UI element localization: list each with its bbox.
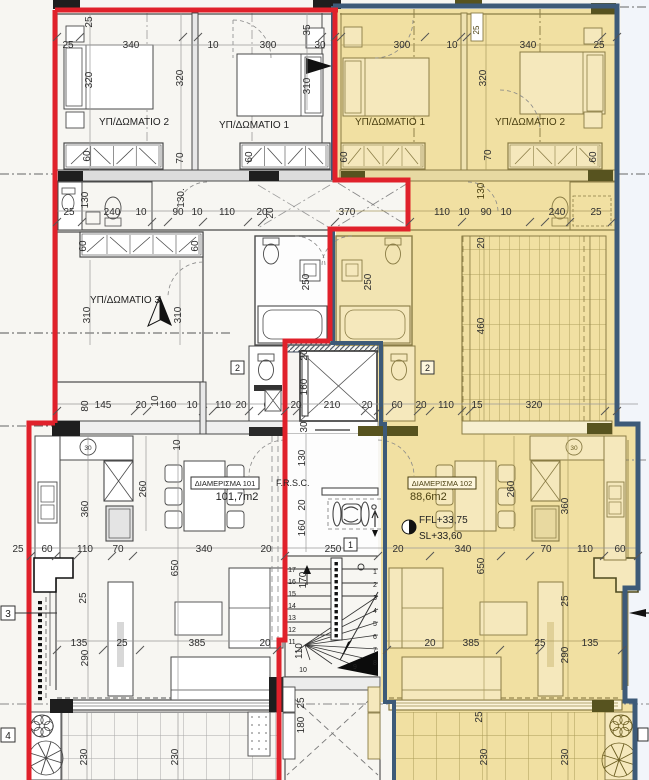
svg-text:10: 10 — [135, 207, 147, 218]
svg-text:25: 25 — [560, 595, 571, 607]
svg-text:250: 250 — [301, 273, 312, 290]
svg-text:1: 1 — [348, 540, 353, 550]
svg-text:310: 310 — [82, 306, 93, 323]
svg-text:13: 13 — [288, 615, 296, 622]
svg-text:25: 25 — [62, 40, 74, 51]
svg-text:250: 250 — [325, 544, 342, 555]
svg-text:180: 180 — [296, 716, 307, 733]
svg-text:70: 70 — [175, 152, 186, 164]
svg-text:20: 20 — [260, 544, 272, 555]
svg-text:310: 310 — [173, 306, 184, 323]
svg-text:310: 310 — [302, 77, 313, 94]
svg-text:20: 20 — [259, 638, 271, 649]
svg-text:2: 2 — [235, 363, 240, 373]
svg-text:240: 240 — [104, 207, 121, 218]
svg-text:110: 110 — [77, 544, 93, 555]
svg-text:20: 20 — [476, 237, 487, 249]
svg-text:340: 340 — [123, 40, 140, 51]
svg-text:25: 25 — [590, 207, 602, 218]
svg-text:25: 25 — [472, 25, 481, 34]
svg-text:SL+33,60: SL+33,60 — [419, 531, 463, 542]
svg-text:60: 60 — [614, 544, 626, 555]
svg-text:25: 25 — [534, 638, 546, 649]
svg-text:2: 2 — [425, 363, 430, 373]
svg-text:10: 10 — [458, 207, 470, 218]
svg-text:4: 4 — [373, 608, 377, 615]
svg-text:30: 30 — [314, 40, 326, 51]
svg-text:30: 30 — [299, 421, 310, 433]
svg-text:250: 250 — [363, 273, 374, 290]
svg-text:160: 160 — [297, 519, 308, 536]
svg-text:110: 110 — [219, 207, 235, 218]
svg-text:230: 230 — [79, 748, 90, 765]
svg-text:320: 320 — [478, 69, 489, 86]
svg-text:650: 650 — [170, 559, 181, 576]
svg-text:130.: 130. — [176, 188, 187, 207]
svg-text:17: 17 — [288, 567, 296, 574]
svg-text:240: 240 — [549, 207, 566, 218]
svg-text:20: 20 — [297, 499, 308, 511]
svg-text:20: 20 — [135, 400, 147, 411]
svg-text:30: 30 — [570, 445, 578, 452]
svg-text:360: 360 — [560, 497, 571, 514]
svg-text:230: 230 — [479, 748, 490, 765]
svg-text:3: 3 — [5, 609, 11, 620]
svg-text:20: 20 — [415, 400, 427, 411]
svg-text:15: 15 — [288, 591, 296, 598]
svg-text:340: 340 — [455, 544, 472, 555]
svg-text:25: 25 — [84, 16, 95, 28]
svg-text:2: 2 — [373, 582, 377, 589]
svg-text:10: 10 — [500, 207, 512, 218]
svg-text:ΥΠ/ΔΩΜΑΤΙΟ 1: ΥΠ/ΔΩΜΑΤΙΟ 1 — [219, 120, 290, 131]
svg-text:60: 60 — [391, 400, 403, 411]
svg-text:60: 60 — [41, 544, 53, 555]
svg-text:130: 130 — [297, 449, 308, 466]
svg-text:20: 20 — [265, 207, 276, 219]
svg-text:340: 340 — [196, 544, 213, 555]
svg-text:80: 80 — [80, 400, 91, 412]
svg-text:ΔΙΑΜΕΡΙΣΜΑ 102: ΔΙΑΜΕΡΙΣΜΑ 102 — [412, 479, 473, 488]
svg-text:135: 135 — [582, 638, 599, 649]
svg-text:650: 650 — [476, 557, 487, 574]
svg-text:4: 4 — [5, 731, 11, 742]
svg-text:ΥΠ/ΔΩΜΑΤΙΟ 2: ΥΠ/ΔΩΜΑΤΙΟ 2 — [99, 117, 170, 128]
svg-text:110: 110 — [434, 207, 450, 218]
svg-text:385: 385 — [463, 638, 480, 649]
svg-text:F.R.S.C.: F.R.S.C. — [276, 478, 310, 488]
svg-text:25: 25 — [474, 711, 485, 723]
svg-text:14: 14 — [288, 603, 296, 610]
svg-text:5: 5 — [373, 621, 377, 628]
svg-text:110: 110 — [577, 544, 593, 555]
svg-text:20: 20 — [235, 400, 247, 411]
svg-text:70: 70 — [540, 544, 552, 555]
svg-text:10: 10 — [299, 667, 307, 674]
svg-text:25: 25 — [63, 207, 75, 218]
svg-text:25: 25 — [296, 697, 307, 709]
svg-text:25: 25 — [78, 592, 89, 604]
svg-text:6: 6 — [373, 634, 377, 641]
svg-text:60: 60 — [244, 151, 255, 163]
svg-text:290: 290 — [560, 646, 571, 663]
svg-text:ΥΠ/ΔΩΜΑΤΙΟ 3: ΥΠ/ΔΩΜΑΤΙΟ 3 — [90, 295, 161, 306]
svg-text:16: 16 — [288, 579, 296, 586]
svg-text:8: 8 — [373, 660, 377, 667]
svg-text:15: 15 — [471, 400, 483, 411]
svg-text:20: 20 — [361, 400, 373, 411]
svg-text:230: 230 — [170, 748, 181, 765]
svg-text:320: 320 — [84, 71, 95, 88]
svg-text:3: 3 — [373, 595, 377, 602]
svg-text:135: 135 — [71, 638, 88, 649]
svg-text:170: 170 — [298, 571, 309, 588]
svg-text:460: 460 — [476, 317, 487, 334]
svg-text:60: 60 — [588, 151, 599, 163]
svg-text:7: 7 — [373, 647, 377, 654]
svg-text:20: 20 — [424, 638, 436, 649]
svg-text:60: 60 — [82, 150, 93, 162]
svg-text:290: 290 — [80, 649, 91, 666]
svg-text:110: 110 — [215, 400, 231, 411]
svg-text:25: 25 — [12, 544, 24, 555]
svg-text:90: 90 — [480, 207, 492, 218]
svg-text:340: 340 — [520, 40, 537, 51]
svg-text:145: 145 — [95, 400, 112, 411]
svg-text:60: 60 — [78, 240, 89, 252]
svg-text:10: 10 — [191, 207, 203, 218]
svg-text:ΥΠ/ΔΩΜΑΤΙΟ 1: ΥΠ/ΔΩΜΑΤΙΟ 1 — [355, 117, 426, 128]
svg-text:20: 20 — [290, 400, 302, 411]
svg-text:360: 360 — [80, 500, 91, 517]
svg-text:260: 260 — [138, 480, 149, 497]
svg-text:88,6m2: 88,6m2 — [410, 491, 447, 503]
svg-text:385: 385 — [189, 638, 206, 649]
svg-text:25: 25 — [116, 638, 128, 649]
svg-text:1: 1 — [373, 569, 377, 576]
svg-text:20: 20 — [392, 544, 404, 555]
svg-text:10: 10 — [186, 400, 198, 411]
svg-text:35: 35 — [302, 24, 313, 36]
svg-text:25: 25 — [593, 40, 605, 51]
svg-text:60: 60 — [339, 151, 350, 163]
svg-text:FFL+33,75: FFL+33,75 — [419, 515, 468, 526]
svg-text:10: 10 — [172, 439, 183, 451]
svg-text:130: 130 — [80, 191, 91, 208]
svg-text:320: 320 — [175, 69, 186, 86]
svg-text:260: 260 — [506, 480, 517, 497]
svg-text:10: 10 — [207, 40, 219, 51]
svg-text:9: 9 — [353, 664, 357, 671]
svg-text:10: 10 — [446, 40, 458, 51]
svg-text:101,7m2: 101,7m2 — [216, 491, 259, 503]
svg-text:130: 130 — [476, 182, 487, 199]
svg-text:110: 110 — [294, 643, 305, 659]
svg-text:12: 12 — [288, 627, 296, 634]
svg-text:300: 300 — [394, 40, 411, 51]
svg-text:60: 60 — [190, 240, 201, 252]
svg-text:ΥΠ/ΔΩΜΑΤΙΟ 2: ΥΠ/ΔΩΜΑΤΙΟ 2 — [495, 117, 566, 128]
svg-text:230: 230 — [560, 748, 571, 765]
svg-text:370: 370 — [339, 207, 356, 218]
svg-text:110: 110 — [438, 400, 454, 411]
svg-text:320: 320 — [526, 400, 543, 411]
svg-text:70: 70 — [483, 149, 494, 161]
svg-text:ΔΙΑΜΕΡΙΣΜΑ 101: ΔΙΑΜΕΡΙΣΜΑ 101 — [195, 479, 256, 488]
svg-text:20: 20 — [299, 349, 310, 361]
svg-text:300: 300 — [260, 40, 277, 51]
svg-text:160: 160 — [160, 400, 177, 411]
svg-text:70: 70 — [112, 544, 124, 555]
svg-text:160: 160 — [299, 378, 310, 395]
svg-text:10: 10 — [150, 395, 161, 407]
svg-text:210: 210 — [324, 400, 341, 411]
